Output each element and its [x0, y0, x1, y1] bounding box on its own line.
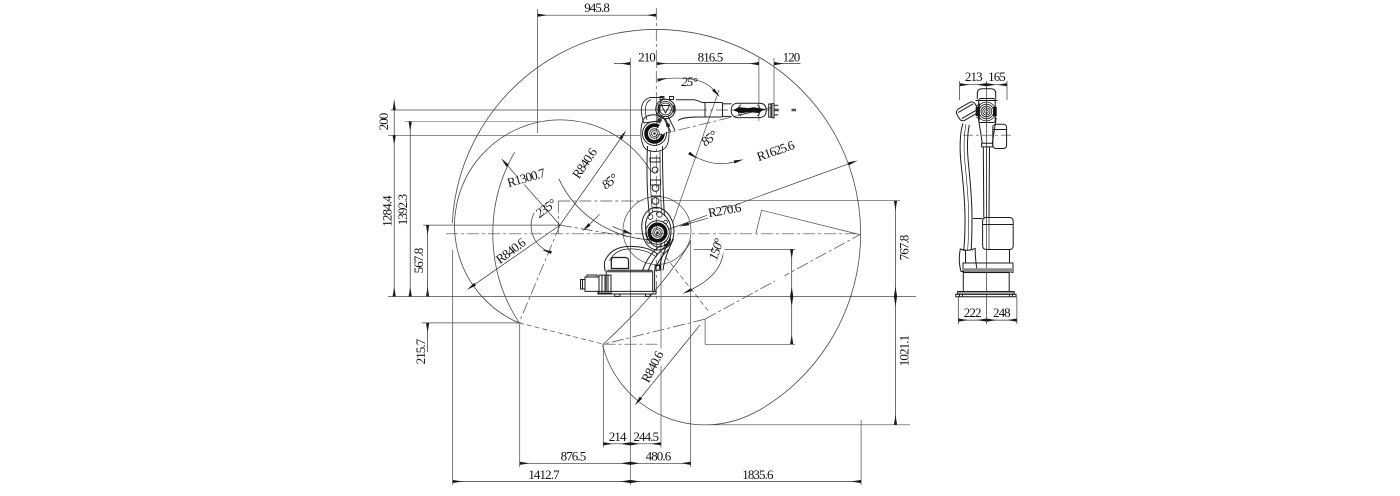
svg-text:945.8: 945.8 — [584, 0, 609, 15]
svg-text:876.5: 876.5 — [561, 449, 586, 464]
svg-text:567.8: 567.8 — [411, 248, 426, 273]
svg-text:210: 210 — [638, 50, 655, 65]
svg-text:R1625.6: R1625.6 — [755, 137, 797, 164]
svg-text:1021.1: 1021.1 — [897, 335, 912, 366]
svg-text:1392.3: 1392.3 — [395, 194, 410, 225]
svg-text:R270.6: R270.6 — [707, 200, 743, 221]
svg-text:1284.4: 1284.4 — [380, 195, 395, 227]
svg-text:1835.6: 1835.6 — [742, 467, 774, 482]
svg-text:120: 120 — [783, 50, 800, 65]
svg-text:767.8: 767.8 — [897, 235, 912, 260]
svg-text:244.5: 244.5 — [633, 429, 658, 444]
svg-text:480.6: 480.6 — [646, 449, 672, 464]
svg-text:85°: 85° — [599, 170, 621, 192]
svg-text:214: 214 — [609, 429, 627, 444]
svg-text:222: 222 — [964, 305, 981, 320]
svg-text:25°: 25° — [681, 74, 697, 89]
svg-text:R1300.7: R1300.7 — [505, 165, 547, 190]
svg-text:1412.7: 1412.7 — [528, 467, 560, 482]
svg-text:248: 248 — [993, 305, 1010, 320]
svg-text:213: 213 — [965, 69, 982, 84]
svg-text:200: 200 — [376, 113, 391, 130]
svg-text:816.5: 816.5 — [698, 50, 723, 65]
svg-text:165: 165 — [988, 69, 1005, 84]
svg-text:235°: 235° — [532, 196, 558, 221]
svg-text:85°: 85° — [698, 127, 720, 149]
svg-text:215.7: 215.7 — [413, 338, 428, 364]
